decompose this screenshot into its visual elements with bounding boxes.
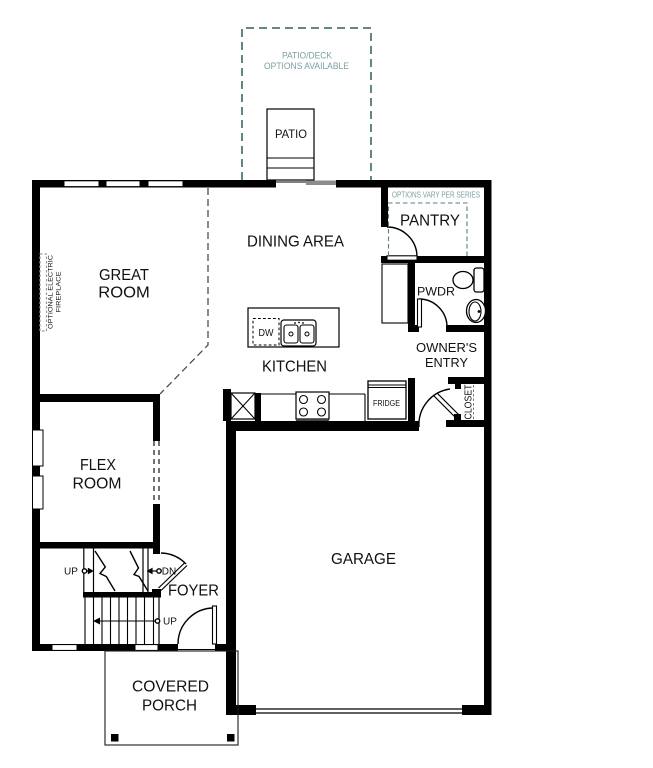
svg-text:CLOSET: CLOSET (463, 384, 475, 419)
svg-text:PATIO: PATIO (275, 127, 307, 141)
svg-text:GREAT: GREAT (99, 267, 150, 284)
svg-text:FIREPLACE: FIREPLACE (56, 271, 63, 313)
svg-text:PATIO/DECK: PATIO/DECK (282, 51, 333, 61)
svg-text:ROOM: ROOM (73, 476, 122, 493)
svg-text:UP: UP (64, 567, 78, 578)
svg-text:PANTRY: PANTRY (400, 213, 460, 230)
svg-text:GARAGE: GARAGE (331, 551, 396, 568)
svg-text:OPTIONS AVAILABLE: OPTIONS AVAILABLE (264, 61, 349, 71)
svg-text:ENTRY: ENTRY (425, 355, 468, 370)
svg-text:FLEX: FLEX (80, 457, 116, 474)
svg-text:PORCH: PORCH (142, 698, 197, 715)
svg-text:DN: DN (162, 567, 176, 578)
svg-text:PWDR: PWDR (417, 285, 455, 299)
svg-text:OWNER'S: OWNER'S (416, 340, 477, 355)
svg-text:FRIDGE: FRIDGE (373, 398, 400, 408)
svg-text:COVERED: COVERED (132, 679, 209, 696)
svg-text:DW: DW (259, 328, 274, 339)
svg-text:ROOM: ROOM (98, 285, 150, 302)
svg-text:OPTIONAL ELECTRIC: OPTIONAL ELECTRIC (48, 255, 55, 329)
svg-text:DINING AREA: DINING AREA (247, 234, 345, 251)
svg-text:OPTIONS VARY PER SERIES: OPTIONS VARY PER SERIES (392, 191, 480, 200)
svg-text:UP: UP (163, 617, 177, 628)
svg-text:FOYER: FOYER (168, 583, 219, 600)
svg-text:KITCHEN: KITCHEN (262, 359, 327, 376)
